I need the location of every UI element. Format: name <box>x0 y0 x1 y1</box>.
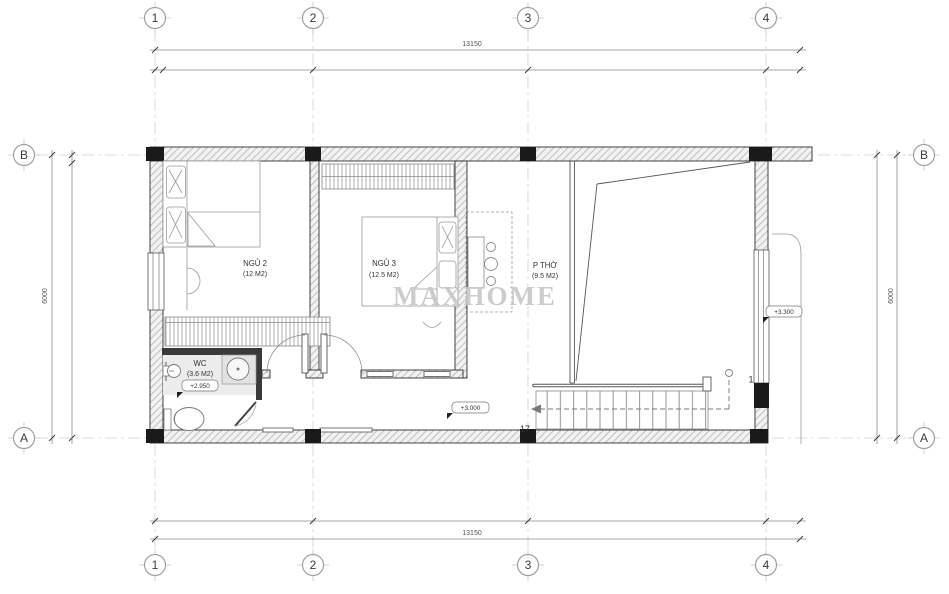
stairs: 1 17 <box>520 370 754 435</box>
grid-label-3-top: 3 <box>525 11 532 25</box>
stair-step-count: 17 <box>520 424 530 434</box>
floor-plan-drawing: 1 2 3 4 1 2 3 <box>0 0 949 594</box>
svg-text:+2.950: +2.950 <box>190 383 210 390</box>
column-right-mid <box>754 383 769 408</box>
wall-wc-top <box>162 348 262 355</box>
stair-walkline-start <box>726 370 733 377</box>
sill-south-1 <box>367 372 393 377</box>
grid-bubble-A-left: A <box>8 422 40 454</box>
wc-door <box>235 402 256 426</box>
sill-bottom-2 <box>320 428 372 432</box>
grid-bubble-col1-bottom: 1 <box>139 549 171 581</box>
column-1B <box>146 147 164 161</box>
sill-bottom-1 <box>263 428 293 432</box>
room-label-wc: WC <box>194 359 207 368</box>
wall-south-seg2 <box>306 370 323 378</box>
svg-text:+3.000: +3.000 <box>461 405 481 412</box>
grid-label-1-top: 1 <box>152 11 159 25</box>
column-4A <box>750 429 768 443</box>
column-1A <box>146 429 164 443</box>
room-area-ngu3: (12.5 M2) <box>369 272 399 279</box>
dim-right-total: 6000 <box>888 288 895 304</box>
room-label-ngu3: NGỦ 3 <box>372 259 396 268</box>
window-left <box>148 253 164 310</box>
floor-plan-canvas: 1 2 3 4 1 2 3 <box>0 0 949 594</box>
sill-south-2 <box>424 372 450 377</box>
grid-bubble-col2-bottom: 2 <box>297 549 329 581</box>
door-leaf-ngu2 <box>302 334 308 373</box>
dim-bottom-total: 13150 <box>462 530 482 537</box>
bed-ngu2 <box>163 161 260 247</box>
grid-label-4-top: 4 <box>763 11 770 25</box>
grid-bubble-B-left: B <box>8 139 40 171</box>
door-leaf-ngu3 <box>321 334 327 373</box>
stair-treads <box>536 391 708 429</box>
grid-bubble-col1-top: 1 <box>139 2 171 34</box>
grid-label-4-bottom: 4 <box>763 558 770 572</box>
wardrobe-ngu3 <box>322 164 454 189</box>
wall-top <box>150 147 812 161</box>
grid-label-2-top: 2 <box>310 11 317 25</box>
grid-label-A-left: A <box>20 431 28 445</box>
room-label-ngu2: NGỦ 2 <box>243 259 267 268</box>
door-ngu3 <box>321 334 362 373</box>
column-2A <box>305 429 321 443</box>
room-label-ptho: P THỜ <box>533 261 557 270</box>
void-slant-1 <box>576 184 597 381</box>
balcony-curve <box>772 234 801 444</box>
grid-bubble-A-right: A <box>908 422 940 454</box>
toilet-icon <box>164 408 204 431</box>
window-right <box>754 250 769 383</box>
column-2B <box>305 147 321 161</box>
void-slant-2 <box>597 162 750 184</box>
grid-label-B-left: B <box>20 148 28 162</box>
level-marker-wc: +2.950 <box>177 380 218 398</box>
swing-arc-ngu3 <box>423 322 441 328</box>
room-area-ptho: (9.5 M2) <box>532 273 558 280</box>
grid-bubble-col4-bottom: 4 <box>750 549 782 581</box>
grid-label-2-bottom: 2 <box>310 558 317 572</box>
room-area-ngu2: (12 M2) <box>243 271 267 278</box>
void-area <box>570 161 750 383</box>
wall-wc-east <box>256 355 262 400</box>
stair-door-tag: 1 <box>748 375 753 385</box>
room-area-wc: (3.6 M2) <box>187 371 213 378</box>
grid-label-B-right: B <box>920 148 928 162</box>
grid-bubble-col3-top: 3 <box>512 2 544 34</box>
grid-bubble-col2-top: 2 <box>297 2 329 34</box>
grid-bubble-col4-top: 4 <box>750 2 782 34</box>
stair-newel <box>703 377 711 391</box>
wall-south-seg1 <box>262 370 270 378</box>
bedroom2-furniture <box>163 161 330 346</box>
grid-bubble-B-right: B <box>908 139 940 171</box>
watermark-text: MAXHOME <box>393 281 557 311</box>
dim-top-total: 13150 <box>462 41 482 48</box>
sink-icon <box>227 358 249 380</box>
grid-label-3-bottom: 3 <box>525 558 532 572</box>
grid-label-1-bottom: 1 <box>152 558 159 572</box>
dim-left-total: 6000 <box>42 288 49 304</box>
column-4B <box>749 147 772 161</box>
column-3B <box>520 147 536 161</box>
wall-bottom <box>150 430 768 443</box>
grid-label-A-right: A <box>920 431 928 445</box>
level-marker-hall: +3.000 <box>447 402 489 419</box>
wc-room <box>163 355 256 431</box>
swing-arc-ngu2 <box>187 268 200 294</box>
grid-bubble-col3-bottom: 3 <box>512 549 544 581</box>
svg-text:+3.300: +3.300 <box>774 309 794 316</box>
